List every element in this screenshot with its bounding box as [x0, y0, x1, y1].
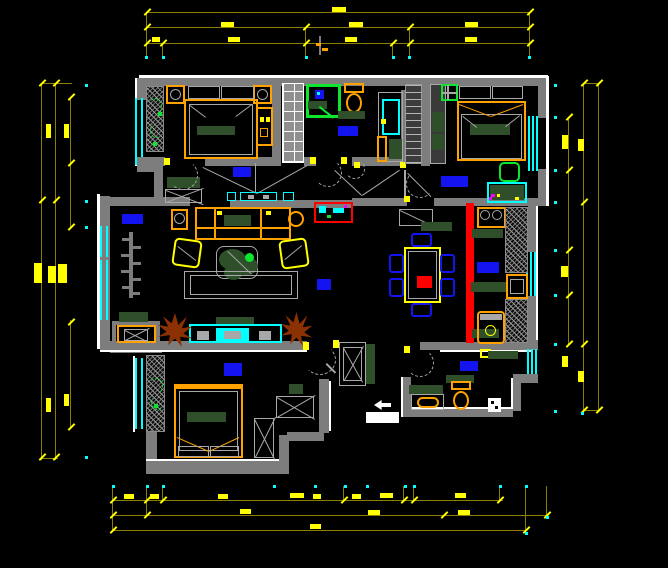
dim-tick	[566, 166, 574, 174]
entry-mat	[366, 412, 399, 423]
sofa-seat-line	[197, 227, 289, 229]
bath2-right-window	[527, 349, 537, 375]
bed2-chair	[499, 162, 520, 182]
dim-dot	[344, 485, 347, 488]
room-label-bathroom1	[338, 126, 358, 136]
dim-tick	[527, 39, 535, 47]
hall-sideboard-tick	[263, 195, 269, 199]
room-label-dining	[317, 279, 331, 290]
bed1-plant-vine	[150, 122, 162, 138]
title-glyph-blob	[48, 266, 56, 283]
dim-tick	[497, 496, 505, 504]
washing-machine-panel	[480, 314, 502, 320]
bed3-plant-dot	[154, 404, 158, 408]
hall-v-line	[362, 170, 400, 196]
bed1-wardrobe-divider	[272, 78, 281, 166]
hall-sideboard-tick	[248, 195, 254, 199]
bed2-closet-item	[432, 112, 444, 132]
balcony-rack-branch	[122, 238, 130, 241]
dim-dot	[145, 56, 148, 59]
dim-dot	[554, 410, 557, 413]
dim-text-blob	[124, 494, 134, 499]
dim-dot	[525, 532, 528, 535]
dim-dot	[392, 56, 395, 59]
bed2-right-window	[528, 116, 538, 171]
kitchen-sink-basin	[510, 279, 524, 294]
dim-dot	[305, 56, 308, 59]
dim-text-blob	[310, 524, 321, 529]
dim-text-blob	[64, 394, 69, 406]
tv-speaker	[197, 331, 209, 340]
dim-dot	[366, 485, 369, 488]
hall-divider-line	[255, 163, 256, 193]
cad-drawing-canvas[interactable]	[0, 0, 668, 568]
bed2-desk-dot	[489, 197, 492, 200]
balcony-rack-branch	[132, 278, 141, 281]
title-glyph-blob	[34, 263, 42, 283]
dim-text-blob	[46, 398, 51, 412]
dim-dot	[581, 412, 584, 415]
dining-shelf	[421, 222, 452, 231]
balcony-rack-branch	[121, 254, 129, 257]
dim-dot	[162, 56, 165, 59]
dim-text-blob	[240, 509, 251, 514]
hall-wall-right	[352, 198, 407, 206]
dim-dot	[554, 84, 557, 87]
ceiling-fan-blade	[442, 92, 457, 94]
round-table-right	[288, 211, 304, 227]
dim-dot	[85, 226, 88, 229]
dim-line	[525, 486, 526, 530]
dim-text-blob	[290, 493, 304, 498]
dim-dot	[112, 485, 115, 488]
dim-dot	[146, 485, 149, 488]
living-left-window-upper	[100, 226, 110, 257]
dim-tick	[596, 406, 604, 414]
dim-dot	[273, 485, 276, 488]
dim-text-blob	[455, 493, 466, 498]
dim-dot	[413, 485, 416, 488]
dim-text-blob	[465, 37, 477, 42]
dining-table-inner	[408, 251, 437, 299]
kitchen-right-white	[536, 206, 538, 342]
kitchen-counter	[472, 229, 503, 238]
bed3-wardrobe-h-diagonal	[277, 395, 315, 418]
alcove-xbox-diagonal	[125, 328, 149, 341]
entry-left-white	[329, 381, 331, 431]
dim-text-blob	[578, 371, 584, 382]
hall-sideboard	[283, 192, 294, 201]
door-hinge	[341, 157, 347, 164]
red-feature-wall	[466, 203, 474, 343]
shower-shelf	[308, 101, 327, 109]
bed1-headboard-right	[221, 86, 254, 99]
dim-text-blob	[46, 124, 51, 138]
dim-dot	[554, 201, 557, 204]
bed2-door-arc	[406, 170, 434, 198]
entry-left-wall	[319, 379, 329, 433]
dim-line	[113, 530, 527, 531]
bath2-counter	[409, 385, 443, 394]
dim-tick	[566, 291, 574, 299]
dim-dot	[162, 485, 165, 488]
section-glyph-mark	[316, 43, 321, 46]
dim-tick	[68, 318, 76, 326]
washbasin-shelf	[389, 139, 402, 159]
bath2-right-wall	[513, 383, 521, 411]
dim-tick	[39, 196, 47, 204]
dim-text-blob	[152, 37, 160, 42]
room-label-kitchen	[477, 262, 499, 273]
balcony-mat	[119, 312, 148, 322]
bed2-desk-dot	[515, 197, 519, 200]
bed1-dresser	[256, 107, 273, 146]
dim-text-blob	[313, 494, 321, 499]
washbasin-mirror	[382, 99, 400, 135]
wall-clutter-dot	[491, 194, 495, 197]
balcony-rack-branch	[122, 286, 130, 289]
bed1-plant-dot	[153, 142, 157, 146]
stove-burner	[492, 210, 502, 220]
bed1-pillow	[197, 126, 235, 135]
bed1-wardrobe-grid	[282, 83, 304, 163]
kitchen-counter	[471, 282, 507, 292]
dim-text-blob	[561, 266, 568, 277]
bed2-headboard-left	[459, 86, 491, 99]
door-hinge	[333, 340, 339, 348]
bed2-headboard-right	[492, 86, 523, 99]
bed3-top-bar	[174, 384, 243, 389]
door-hinge	[354, 162, 360, 168]
bed3-wardrobe-h	[276, 396, 314, 418]
tv-speaker	[259, 331, 271, 340]
dim-dot	[85, 200, 88, 203]
dim-text-blob	[221, 22, 234, 27]
dining-chair	[440, 254, 455, 273]
sofa-pillow-dot	[217, 211, 222, 215]
dim-line	[70, 320, 71, 428]
dim-tick	[566, 340, 574, 348]
bed3-step-wall-h	[287, 432, 324, 441]
dim-text-blob	[352, 494, 361, 499]
dim-text-blob	[380, 493, 393, 498]
dim-line	[113, 500, 503, 501]
bed3-footboard	[210, 446, 239, 457]
bed1-headboard-left	[188, 86, 220, 99]
dim-tick	[566, 246, 574, 254]
hall-table-xbox-diagonal	[166, 190, 203, 205]
dim-line	[529, 12, 530, 57]
sofa-pillow-dot	[266, 211, 271, 215]
hall-table-xbox	[165, 189, 202, 203]
dim-tick	[527, 8, 535, 16]
title-glyph-blob	[58, 264, 67, 283]
kitchen-hatch-counter	[505, 299, 528, 343]
balcony-rack-branch	[121, 270, 129, 273]
bath2-counter	[488, 351, 518, 359]
rug-inner	[190, 275, 292, 295]
kitchen-right-wall-lower	[528, 296, 536, 342]
dim-text-blob	[465, 22, 478, 27]
dim-text-blob	[345, 37, 357, 42]
dim-tick	[53, 196, 61, 204]
dim-tick	[527, 23, 535, 31]
toilet1-tank	[344, 83, 364, 93]
room-label-living	[122, 214, 143, 224]
dim-text-blob	[218, 494, 228, 499]
room-label-bathroom2	[460, 361, 478, 371]
bed1-dresser-drawer	[260, 128, 268, 137]
dim-text-blob	[578, 139, 584, 151]
ac-snowflake	[319, 206, 326, 213]
washbasin-knob	[381, 119, 386, 124]
bed1-plant-dot	[158, 112, 162, 116]
dim-text-blob	[64, 124, 69, 138]
dim-tick	[596, 79, 604, 87]
kitchen-hatch-counter	[505, 207, 528, 273]
dim-text-blob	[150, 494, 159, 499]
door-hinge	[404, 346, 410, 353]
bed2-right-wall-lower	[538, 169, 546, 206]
door-hinge	[404, 196, 410, 202]
dim-line	[598, 83, 599, 411]
armchair-right	[278, 237, 310, 270]
floor-drain-dot	[495, 406, 498, 409]
dim-dot	[499, 485, 502, 488]
dim-dot	[528, 56, 531, 59]
dim-dot	[85, 84, 88, 87]
door-hinge	[310, 157, 316, 164]
hall-table-xbox-diagonal	[166, 188, 203, 203]
bed1-nightstand-left-lamp	[170, 89, 181, 100]
bed3-pillow	[187, 412, 226, 422]
dim-text-blob	[458, 510, 470, 515]
bed3-wardrobe-v-diagonal	[255, 417, 276, 457]
bed3-bottom-wall	[146, 461, 287, 474]
room-label-bedroom2	[441, 176, 468, 187]
dim-line	[113, 515, 547, 516]
bed3-wardrobe-v	[254, 418, 274, 458]
bath1-counter	[338, 111, 365, 119]
dim-text-blob	[368, 510, 380, 515]
kitchen-right-wall-upper	[528, 206, 536, 252]
shoe-cabinet-side	[366, 344, 375, 384]
kitchen-bottom-wall	[420, 342, 532, 350]
shoe-cabinet-xbox	[343, 347, 362, 381]
dining-chair	[389, 278, 404, 297]
dining-chair	[411, 303, 432, 317]
ac-vent	[333, 208, 344, 213]
sofa-cushion	[224, 215, 251, 226]
dim-dot	[408, 56, 411, 59]
bed1-door-arc	[168, 160, 198, 190]
coffee-plant-bud	[245, 253, 254, 262]
shoe-cabinet-xbox-diagonal	[344, 346, 364, 380]
shower-head-dot	[317, 92, 320, 95]
dining-chair	[389, 254, 404, 273]
balcony-rack-branch	[132, 246, 141, 249]
toilet2-bowl	[453, 391, 469, 410]
dim-text-blob	[562, 356, 568, 367]
ac-dot	[327, 215, 331, 218]
dim-dot	[554, 116, 557, 119]
dim-line	[112, 486, 113, 530]
bed1-left-window	[135, 98, 145, 165]
tv-core	[224, 331, 241, 339]
washing-machine-door	[485, 325, 496, 336]
ceiling-fan-blade	[447, 85, 449, 100]
floor-drain-dot	[491, 401, 494, 404]
dim-text-blob	[349, 22, 363, 27]
dim-dot	[314, 485, 317, 488]
bed3-shelf	[289, 384, 303, 394]
bath2-sink-basin	[417, 397, 439, 408]
dim-text-blob	[228, 37, 240, 42]
bed1-nightstand-right-lamp	[257, 89, 268, 100]
bed1-dresser-knob	[260, 117, 264, 122]
dim-tick	[581, 198, 589, 206]
dim-tick	[53, 453, 61, 461]
dim-line	[147, 43, 530, 44]
entry-arrow-icon	[374, 400, 391, 410]
bed3-wardrobe-h-diagonal	[276, 397, 314, 420]
wall-clutter-dot	[497, 194, 500, 197]
dining-chair	[440, 278, 455, 297]
hall-sideboard	[240, 192, 277, 201]
dim-line	[147, 12, 530, 13]
bed1-bottom-wall-left	[137, 157, 165, 166]
floor-drain-tile	[488, 398, 501, 412]
dim-line	[568, 117, 569, 346]
dim-dot	[525, 485, 528, 488]
dim-line	[583, 83, 584, 411]
dim-dot	[554, 249, 557, 252]
dining-chair	[411, 233, 432, 247]
balcony-rack-branch	[132, 262, 141, 265]
dim-tick	[68, 159, 76, 167]
bed1-door-hinge	[164, 158, 170, 165]
hall-closet-wall	[421, 78, 430, 166]
dining-table-center	[417, 276, 432, 288]
dim-dot	[404, 485, 407, 488]
sofa-divider	[260, 208, 262, 238]
dim-tick	[39, 453, 47, 461]
washbasin-door	[377, 136, 387, 162]
room-label-bedroom3	[224, 363, 242, 376]
dim-dot	[554, 169, 557, 172]
hall-v-line	[257, 165, 307, 194]
section-glyph-mark	[322, 48, 328, 51]
dim-text-blob	[562, 135, 568, 149]
dim-line	[546, 486, 547, 515]
dim-tick	[68, 423, 76, 431]
bath2-door-arc	[406, 349, 434, 377]
dim-text-blob	[332, 7, 346, 12]
bed3-footboard	[178, 446, 209, 457]
living-bottom-white	[100, 350, 307, 352]
dim-tick	[68, 223, 76, 231]
balcony-rack-branch	[131, 292, 140, 295]
room-label-bedroom1	[233, 167, 251, 177]
stove-burner	[480, 210, 490, 220]
dim-tick	[566, 113, 574, 121]
living-left-window-lower	[100, 260, 110, 320]
dim-tick	[68, 93, 76, 101]
side-table-left-plate	[174, 213, 185, 224]
toilet2-tank	[451, 381, 471, 390]
alcove-xbox	[124, 329, 148, 341]
bed2-right-white	[546, 76, 549, 206]
dim-dot	[554, 343, 557, 346]
toilet1-bowl	[346, 93, 362, 113]
dim-line	[147, 27, 530, 28]
dim-dot	[546, 516, 549, 519]
sofa-divider	[214, 208, 216, 238]
bed2-closet-item	[432, 134, 444, 150]
hall-ladder-closet	[405, 84, 422, 164]
dim-dot	[85, 456, 88, 459]
dim-line	[146, 12, 147, 57]
bed3-plant-vine	[149, 378, 163, 394]
bed3-left-window	[135, 358, 145, 429]
alcove-xbox-diagonal	[125, 330, 149, 343]
bath2-step-h	[513, 374, 538, 383]
hall-sideboard	[227, 192, 236, 201]
bed1-dresser-knob	[266, 117, 270, 122]
dim-tick	[581, 340, 589, 348]
bed2-right-wall-upper	[538, 78, 546, 118]
dim-dot	[554, 294, 557, 297]
ac-dot	[344, 205, 347, 208]
